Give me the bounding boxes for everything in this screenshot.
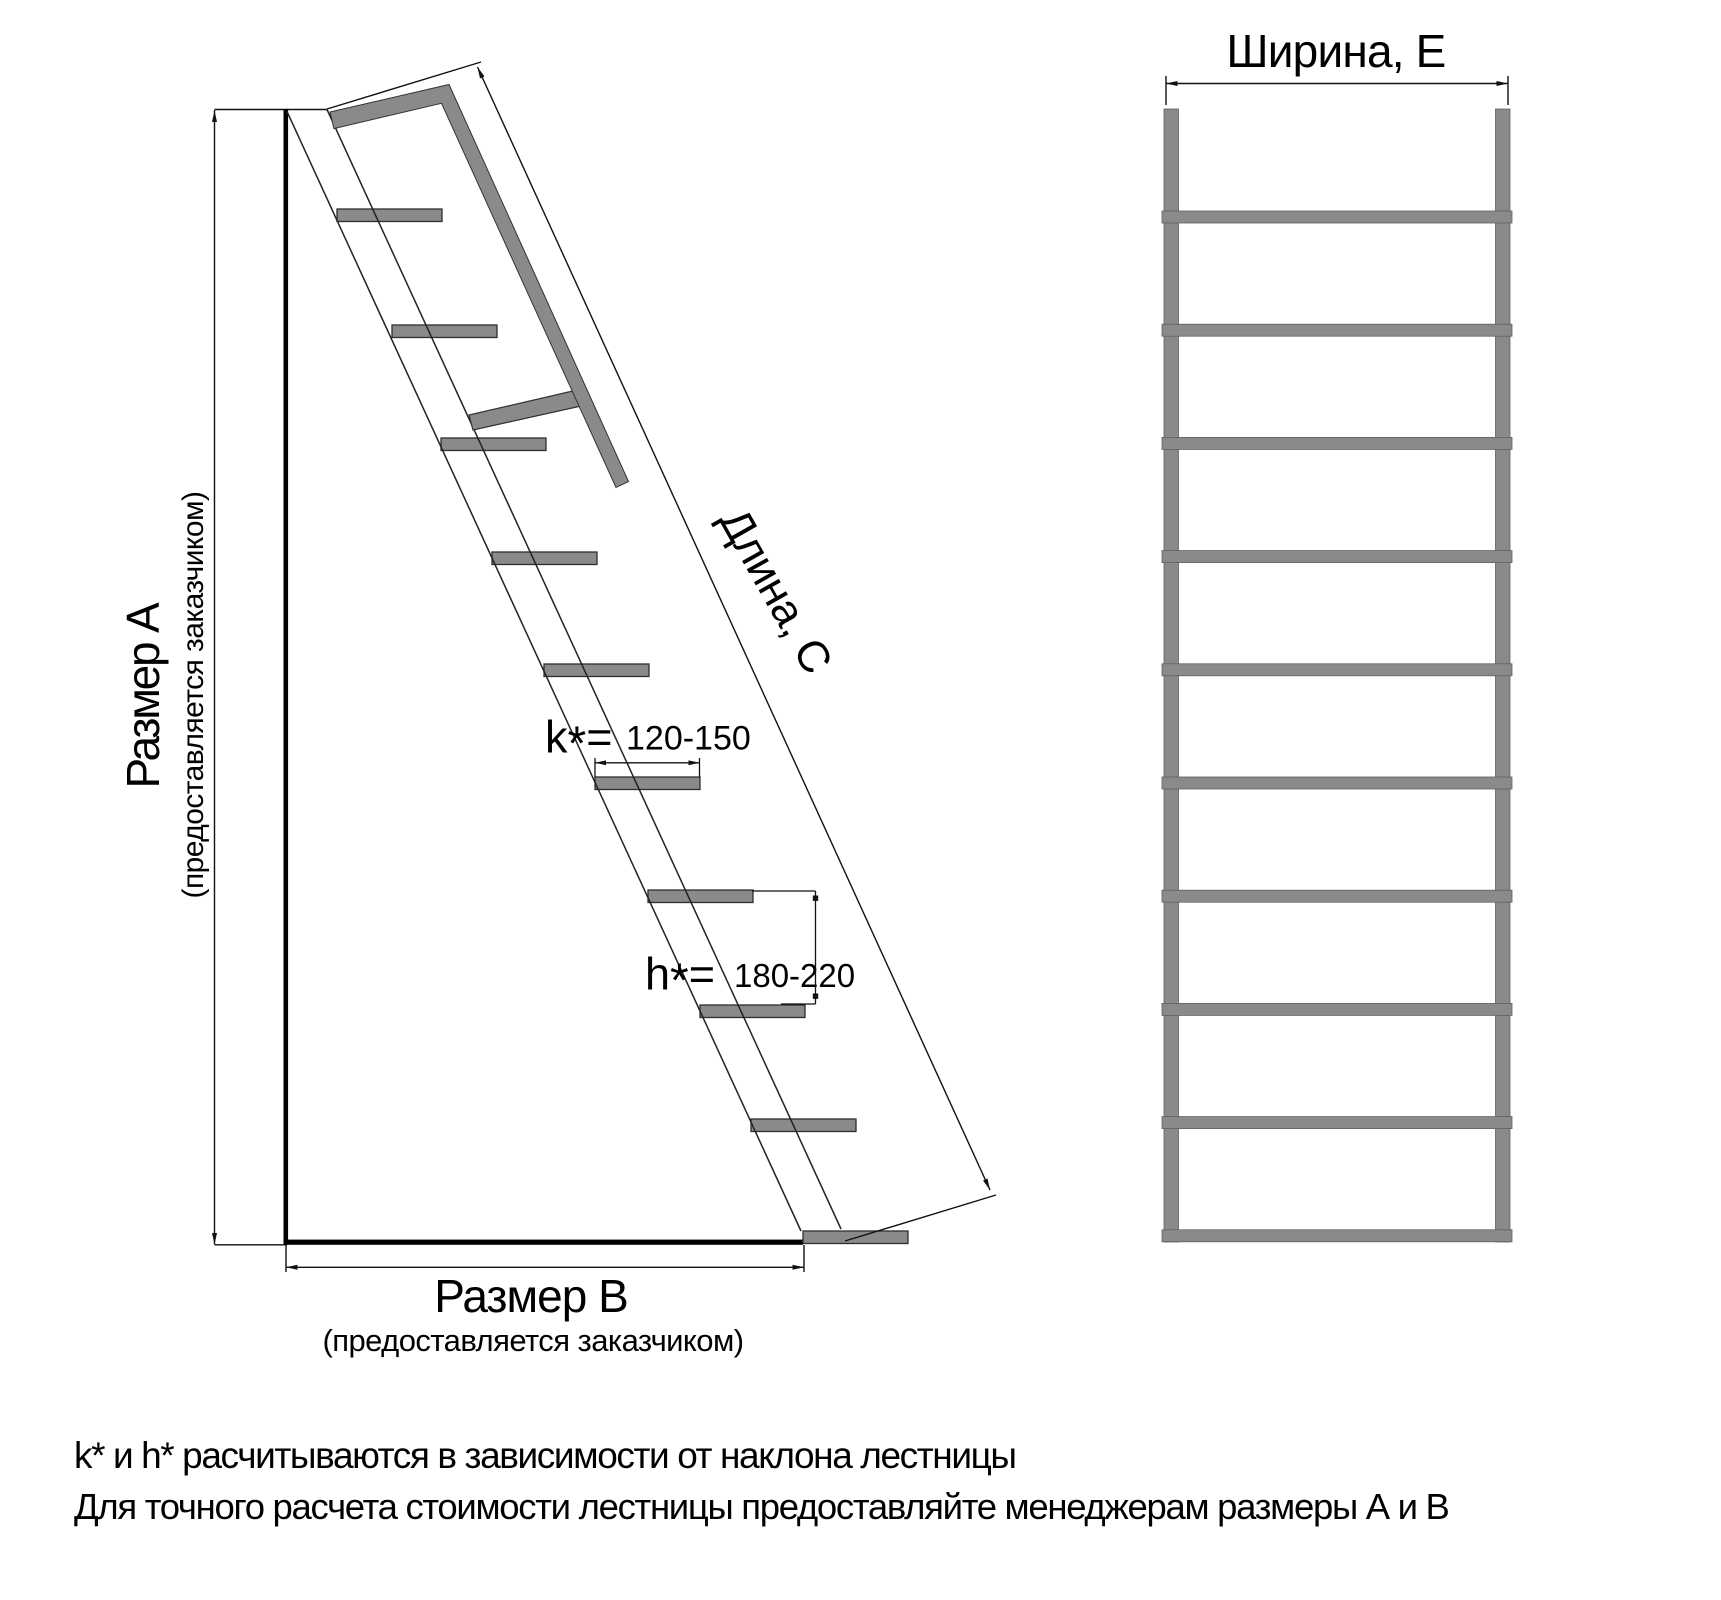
svg-text:k* и h* расчитываются в зависи: k* и h* расчитываются в зависимости от н… [74, 1435, 1016, 1476]
svg-text:120-150: 120-150 [626, 720, 751, 758]
svg-text:h*=: h*= [645, 949, 715, 1008]
svg-text:Для точного расчета стоимости: Для точного расчета стоимости лестницы п… [74, 1486, 1449, 1527]
svg-text:180-220: 180-220 [734, 957, 855, 994]
svg-text:Ширина, Е: Ширина, Е [1226, 25, 1445, 77]
svg-text:(предоставляется заказчиком): (предоставляется заказчиком) [322, 1323, 743, 1358]
svg-text:(предоставляется заказчиком): (предоставляется заказчиком) [177, 492, 210, 899]
svg-text:Размер В: Размер В [434, 1270, 628, 1322]
svg-text:Размер А: Размер А [117, 602, 169, 788]
